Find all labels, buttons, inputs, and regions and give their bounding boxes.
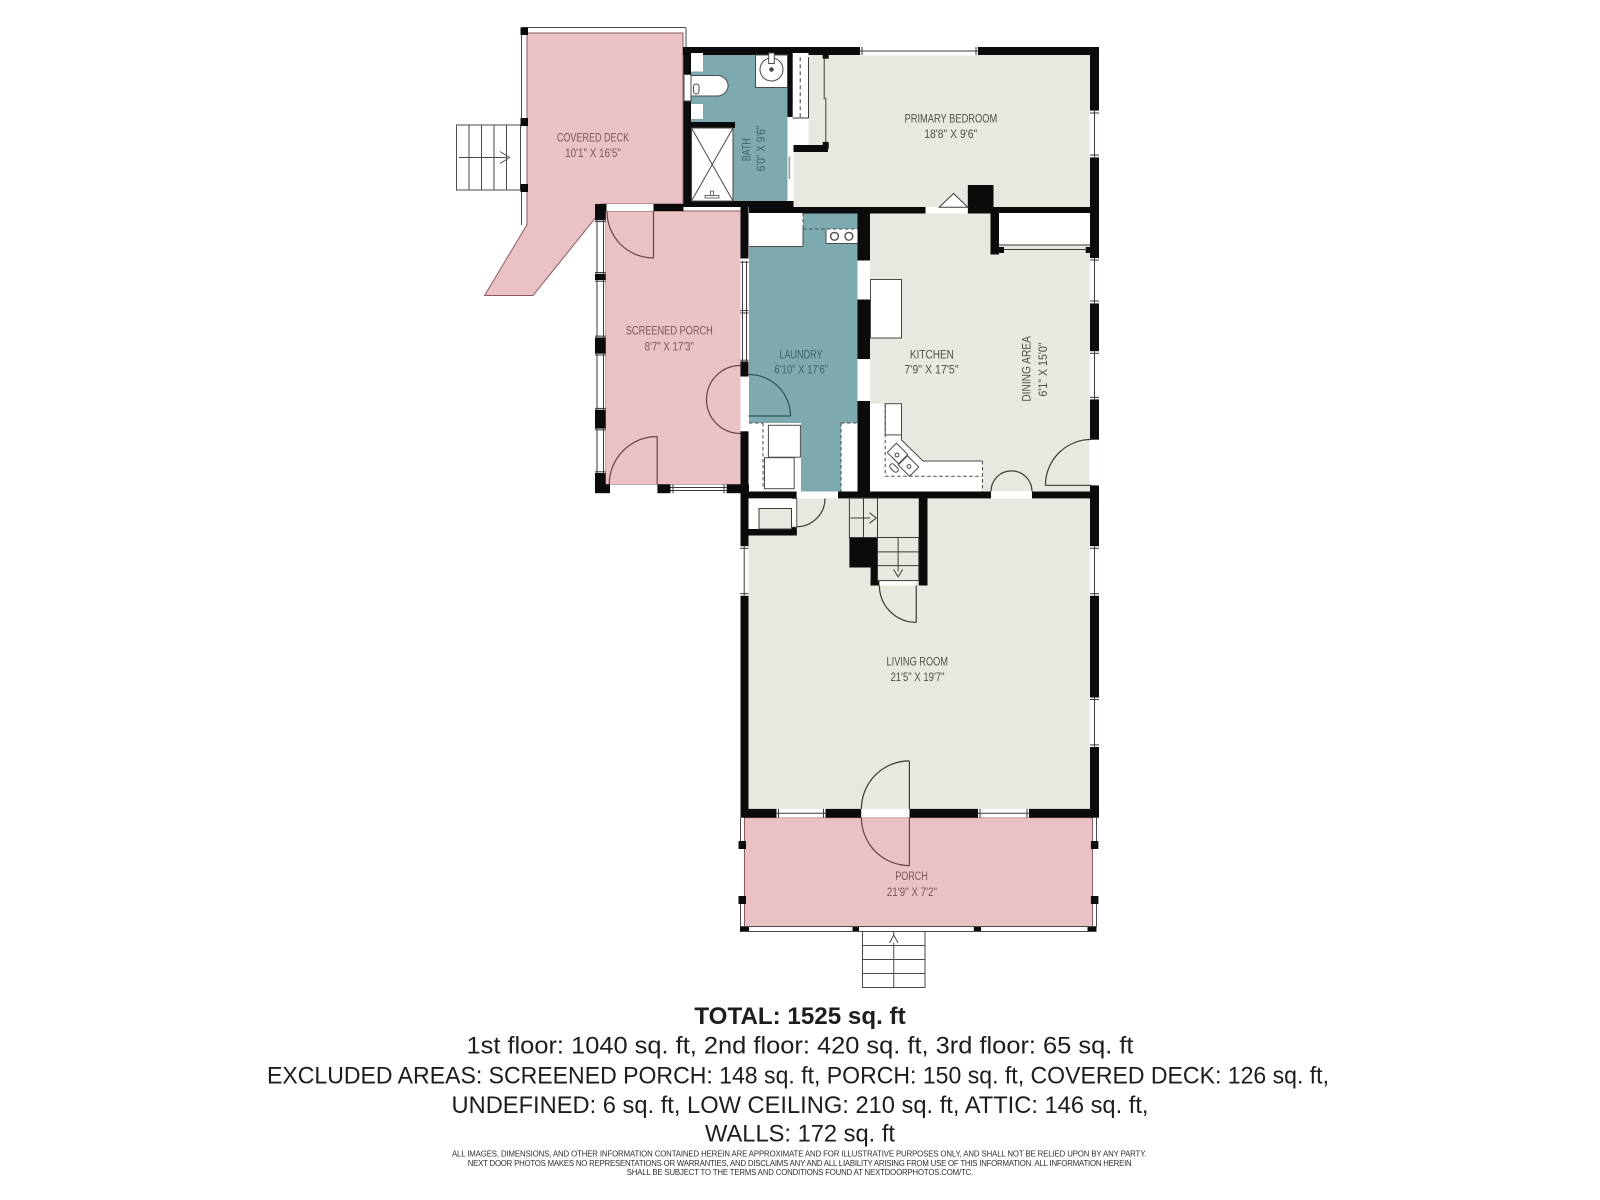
svg-text:EXCLUDED AREAS: SCREENED PORCH: EXCLUDED AREAS: SCREENED PORCH: 148 sq. … xyxy=(267,1063,1329,1090)
svg-text:21'9" X 7'2": 21'9" X 7'2" xyxy=(887,886,937,899)
svg-text:6'10" X 17'6": 6'10" X 17'6" xyxy=(774,364,828,377)
svg-text:WALLS: 172 sq. ft: WALLS: 172 sq. ft xyxy=(705,1121,895,1148)
svg-text:UNDEFINED: 6 sq. ft, LOW CEILI: UNDEFINED: 6 sq. ft, LOW CEILING: 210 sq… xyxy=(452,1092,1149,1119)
svg-text:21'5" X 19'7": 21'5" X 19'7" xyxy=(890,671,944,684)
svg-text:18'8" X 9'6": 18'8" X 9'6" xyxy=(924,128,977,141)
svg-text:8'7" X 17'3": 8'7" X 17'3" xyxy=(645,340,694,353)
svg-text:TOTAL: 1525 sq. ft: TOTAL: 1525 sq. ft xyxy=(694,1003,905,1030)
svg-text:KITCHEN: KITCHEN xyxy=(910,349,954,362)
svg-text:DINING AREA: DINING AREA xyxy=(1021,336,1034,402)
svg-text:NEXT DOOR PHOTOS MAKES NO REPR: NEXT DOOR PHOTOS MAKES NO REPRESENTATION… xyxy=(468,1159,1132,1168)
svg-text:ALL IMAGES, DIMENSIONS, AND OT: ALL IMAGES, DIMENSIONS, AND OTHER INFORM… xyxy=(452,1149,1146,1158)
svg-text:BATH: BATH xyxy=(740,138,754,161)
svg-text:LIVING ROOM: LIVING ROOM xyxy=(887,655,948,669)
svg-text:10'1" X 16'5": 10'1" X 16'5" xyxy=(565,147,621,160)
svg-text:PORCH: PORCH xyxy=(895,870,928,884)
svg-text:PRIMARY BEDROOM: PRIMARY BEDROOM xyxy=(905,112,998,125)
svg-text:SCREENED PORCH: SCREENED PORCH xyxy=(626,325,713,339)
svg-text:LAUNDRY: LAUNDRY xyxy=(779,348,822,362)
svg-text:6'1" X 15'0": 6'1" X 15'0" xyxy=(1037,342,1050,396)
svg-text:COVERED DECK: COVERED DECK xyxy=(557,131,630,145)
svg-text:1st floor: 1040 sq. ft, 2nd fl: 1st floor: 1040 sq. ft, 2nd floor: 420 s… xyxy=(467,1033,1134,1060)
svg-text:7'9" X 17'5": 7'9" X 17'5" xyxy=(904,364,958,377)
svg-text:6'0" X 9'6": 6'0" X 9'6" xyxy=(755,126,768,172)
svg-text:SHALL BE SUBJECT TO THE TERMS: SHALL BE SUBJECT TO THE TERMS AND CONDIT… xyxy=(627,1168,974,1177)
